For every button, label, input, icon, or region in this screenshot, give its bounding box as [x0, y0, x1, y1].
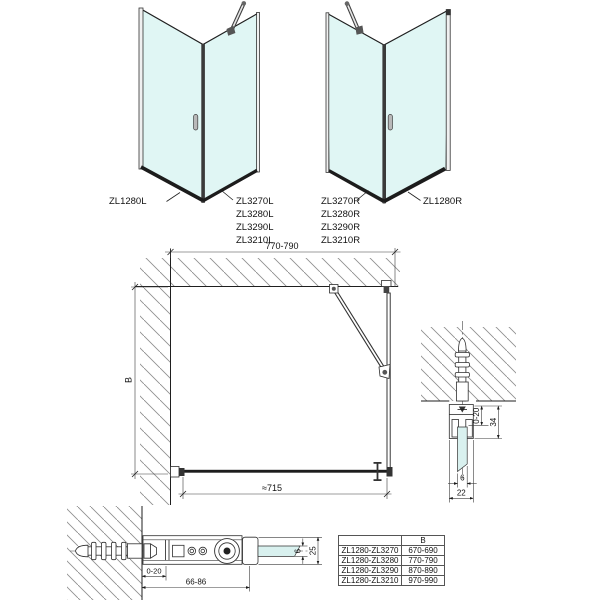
table-header-model: [339, 536, 402, 546]
wall-profile-left: [326, 13, 329, 173]
glass-clamp: [243, 537, 259, 564]
label-side-right-3: ZL3290R: [321, 222, 360, 233]
wall-profile-right: [257, 12, 260, 172]
dim-glass-thickness: 6: [293, 539, 307, 564]
corner-profile: [201, 44, 205, 203]
dim-glass-width: ≈715: [179, 477, 392, 499]
table-cell-model: ZL1280-ZL3270: [339, 546, 402, 556]
table-cell-model: ZL1280-ZL3280: [339, 556, 402, 566]
plan-view: 770-790 B ≈715: [124, 241, 401, 505]
table-row: ZL1280-ZL3210 970-990: [339, 576, 445, 586]
label-side-right-2: ZL3280R: [321, 209, 360, 220]
dim-bracket-height-value: 25: [308, 546, 317, 555]
label-side-right-1: ZL3270R: [321, 196, 360, 207]
label-door-left: ZL1280L: [109, 196, 147, 207]
enclosure-3d-right-version: [326, 1, 451, 203]
table-cell-b: 770-790: [402, 556, 445, 566]
technical-drawing-page: ZL1280L ZL3270L ZL3280L ZL3290L ZL3210L …: [0, 0, 600, 600]
dim-glass-thickness-value: 6: [293, 548, 302, 553]
enclosure-3d-left-version: [139, 1, 259, 203]
table-cell-b: 970-990: [402, 576, 445, 586]
wall-bracket-left: [171, 467, 180, 478]
dim-glass-width-value: ≈715: [262, 483, 282, 493]
table-cell-b: 870-890: [402, 566, 445, 576]
dim-adjust: 0-20: [142, 566, 166, 581]
table-cell-b: 670-690: [402, 546, 445, 556]
model-labels: ZL1280L ZL3270L ZL3280L ZL3290L ZL3210L …: [109, 191, 462, 247]
corner-profile: [382, 45, 386, 204]
table-cell-model: ZL1280-ZL3210: [339, 576, 402, 586]
door-handle: [194, 115, 198, 131]
dim-profile-height-value: 34: [489, 417, 498, 426]
wall-bracket-top-clamp: [384, 287, 390, 294]
dim-adjust-value: 0-20: [472, 407, 481, 424]
door-handle: [388, 115, 392, 131]
wall-profile-section: 0-20 34 6 22: [421, 321, 516, 503]
dim-glass-thickness-value: 6: [460, 474, 465, 483]
adjust-block: [173, 545, 185, 557]
dim-adjust-value: 0-20: [146, 566, 161, 575]
wall-bracket-section: 6 25 0-20 66-86: [67, 506, 322, 600]
table-header-b: B: [402, 536, 445, 546]
support-brace-plan: [330, 285, 391, 379]
label-side-left-3: ZL3290L: [236, 222, 274, 233]
leader-line: [222, 191, 234, 201]
wall-bracket-top: [382, 281, 392, 287]
corner-end-cap: [387, 467, 393, 477]
door-plan: [183, 470, 387, 473]
dim-profile-width-value: 22: [457, 488, 466, 497]
dim-width-value: 770-790: [265, 241, 298, 251]
label-door-right: ZL1280R: [423, 196, 462, 207]
leader-line: [408, 192, 421, 201]
glass-section: [458, 427, 468, 472]
wall-profile-right: [446, 10, 450, 171]
pivot-hinge: [215, 539, 240, 564]
size-table: B ZL1280-ZL3270 670-690 ZL1280-ZL3280 77…: [338, 535, 445, 586]
side-panel-plan: [387, 293, 390, 470]
label-side-right-4: ZL3210R: [321, 235, 360, 246]
label-side-left-2: ZL3280L: [236, 209, 274, 220]
wall-profile-left: [139, 8, 143, 169]
dim-depth-value: B: [124, 377, 134, 383]
dim-bracket-length-value: 66-86: [186, 577, 207, 586]
label-side-left-1: ZL3270L: [236, 196, 274, 207]
table-header-row: B: [339, 536, 445, 546]
table-row: ZL1280-ZL3280 770-790: [339, 556, 445, 566]
top-pivot: [446, 9, 450, 15]
table-cell-model: ZL1280-ZL3290: [339, 566, 402, 576]
table-row: ZL1280-ZL3270 670-690: [339, 546, 445, 556]
leader-line: [167, 193, 181, 202]
shower-enclosure-drawing: ZL1280L ZL3270L ZL3280L ZL3290L ZL3210L …: [0, 0, 600, 600]
table-row: ZL1280-ZL3290 870-890: [339, 566, 445, 576]
wall-bracket-left-clamp: [179, 468, 185, 476]
